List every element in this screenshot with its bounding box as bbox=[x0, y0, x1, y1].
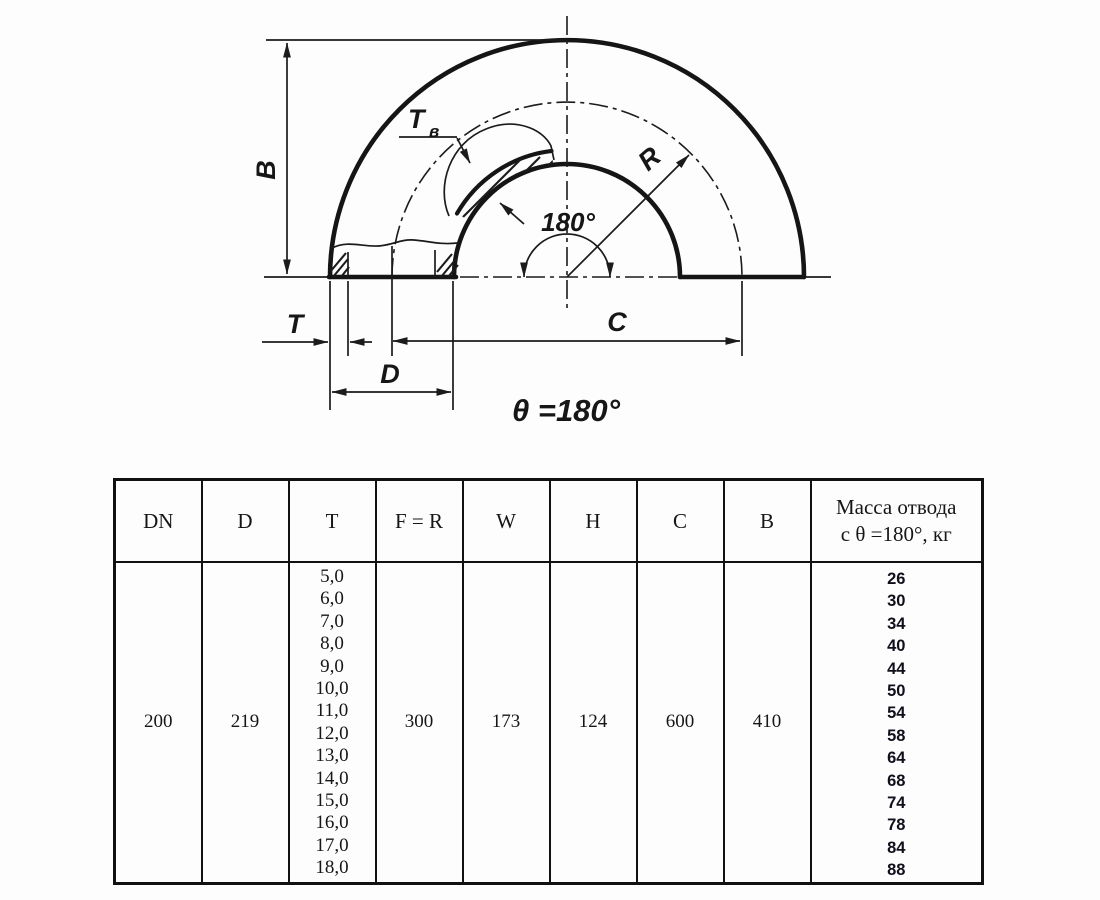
cell-mass-values: 2630344044505458646874788488 bbox=[811, 562, 983, 883]
col-header-dn: DN bbox=[115, 480, 202, 563]
tv-arrow-upper bbox=[457, 138, 470, 163]
cell-fr: 300 bbox=[376, 562, 463, 883]
dim-label-d: D bbox=[380, 359, 400, 389]
col-header-c: C bbox=[637, 480, 724, 563]
col-header-w: W bbox=[463, 480, 550, 563]
cell-c: 600 bbox=[637, 562, 724, 883]
dim-label-b: B bbox=[251, 160, 281, 180]
col-header-t: T bbox=[289, 480, 376, 563]
dim-label-t: T bbox=[287, 309, 306, 339]
col-header-mass: Масса отвода с θ =180°, кг bbox=[811, 480, 983, 563]
dimensions-table: DN D T F = R W H C B Масса отвода с θ =1… bbox=[113, 478, 984, 885]
cell-t-values: 5,06,07,08,09,010,011,012,013,014,015,01… bbox=[289, 562, 376, 883]
table-header-row: DN D T F = R W H C B Масса отвода с θ =1… bbox=[115, 480, 983, 563]
mass-values-list: 2630344044505458646874788488 bbox=[812, 563, 982, 882]
page: B T в R 180° T D C θ =180° DN D T F = R … bbox=[0, 0, 1100, 900]
cell-h: 124 bbox=[550, 562, 637, 883]
dim-label-c: C bbox=[607, 307, 627, 337]
elbow-drawing: B T в R 180° T D C θ =180° bbox=[0, 0, 1100, 470]
cell-b: 410 bbox=[724, 562, 811, 883]
col-header-b: B bbox=[724, 480, 811, 563]
wall-thickness-label: T bbox=[408, 104, 427, 134]
angle-label: 180° bbox=[541, 207, 595, 237]
cell-d: 219 bbox=[202, 562, 289, 883]
wall-thickness-label-subscript: в bbox=[429, 122, 439, 141]
mass-header-line1: Масса отвода bbox=[812, 494, 982, 521]
t-values-list: 5,06,07,08,09,010,011,012,013,014,015,01… bbox=[290, 563, 375, 880]
col-header-h: H bbox=[550, 480, 637, 563]
elbow-drawing-svg: B T в R 180° T D C θ =180° bbox=[0, 0, 1100, 470]
theta-caption: θ =180° bbox=[512, 393, 621, 428]
cell-w: 173 bbox=[463, 562, 550, 883]
cell-dn: 200 bbox=[115, 562, 202, 883]
col-header-fr: F = R bbox=[376, 480, 463, 563]
table-data-row: 200 219 5,06,07,08,09,010,011,012,013,01… bbox=[115, 562, 983, 883]
dim-label-r: R bbox=[632, 141, 667, 177]
tv-arrow-lower bbox=[500, 203, 524, 224]
mass-header-line2: с θ =180°, кг bbox=[812, 521, 982, 548]
col-header-d: D bbox=[202, 480, 289, 563]
